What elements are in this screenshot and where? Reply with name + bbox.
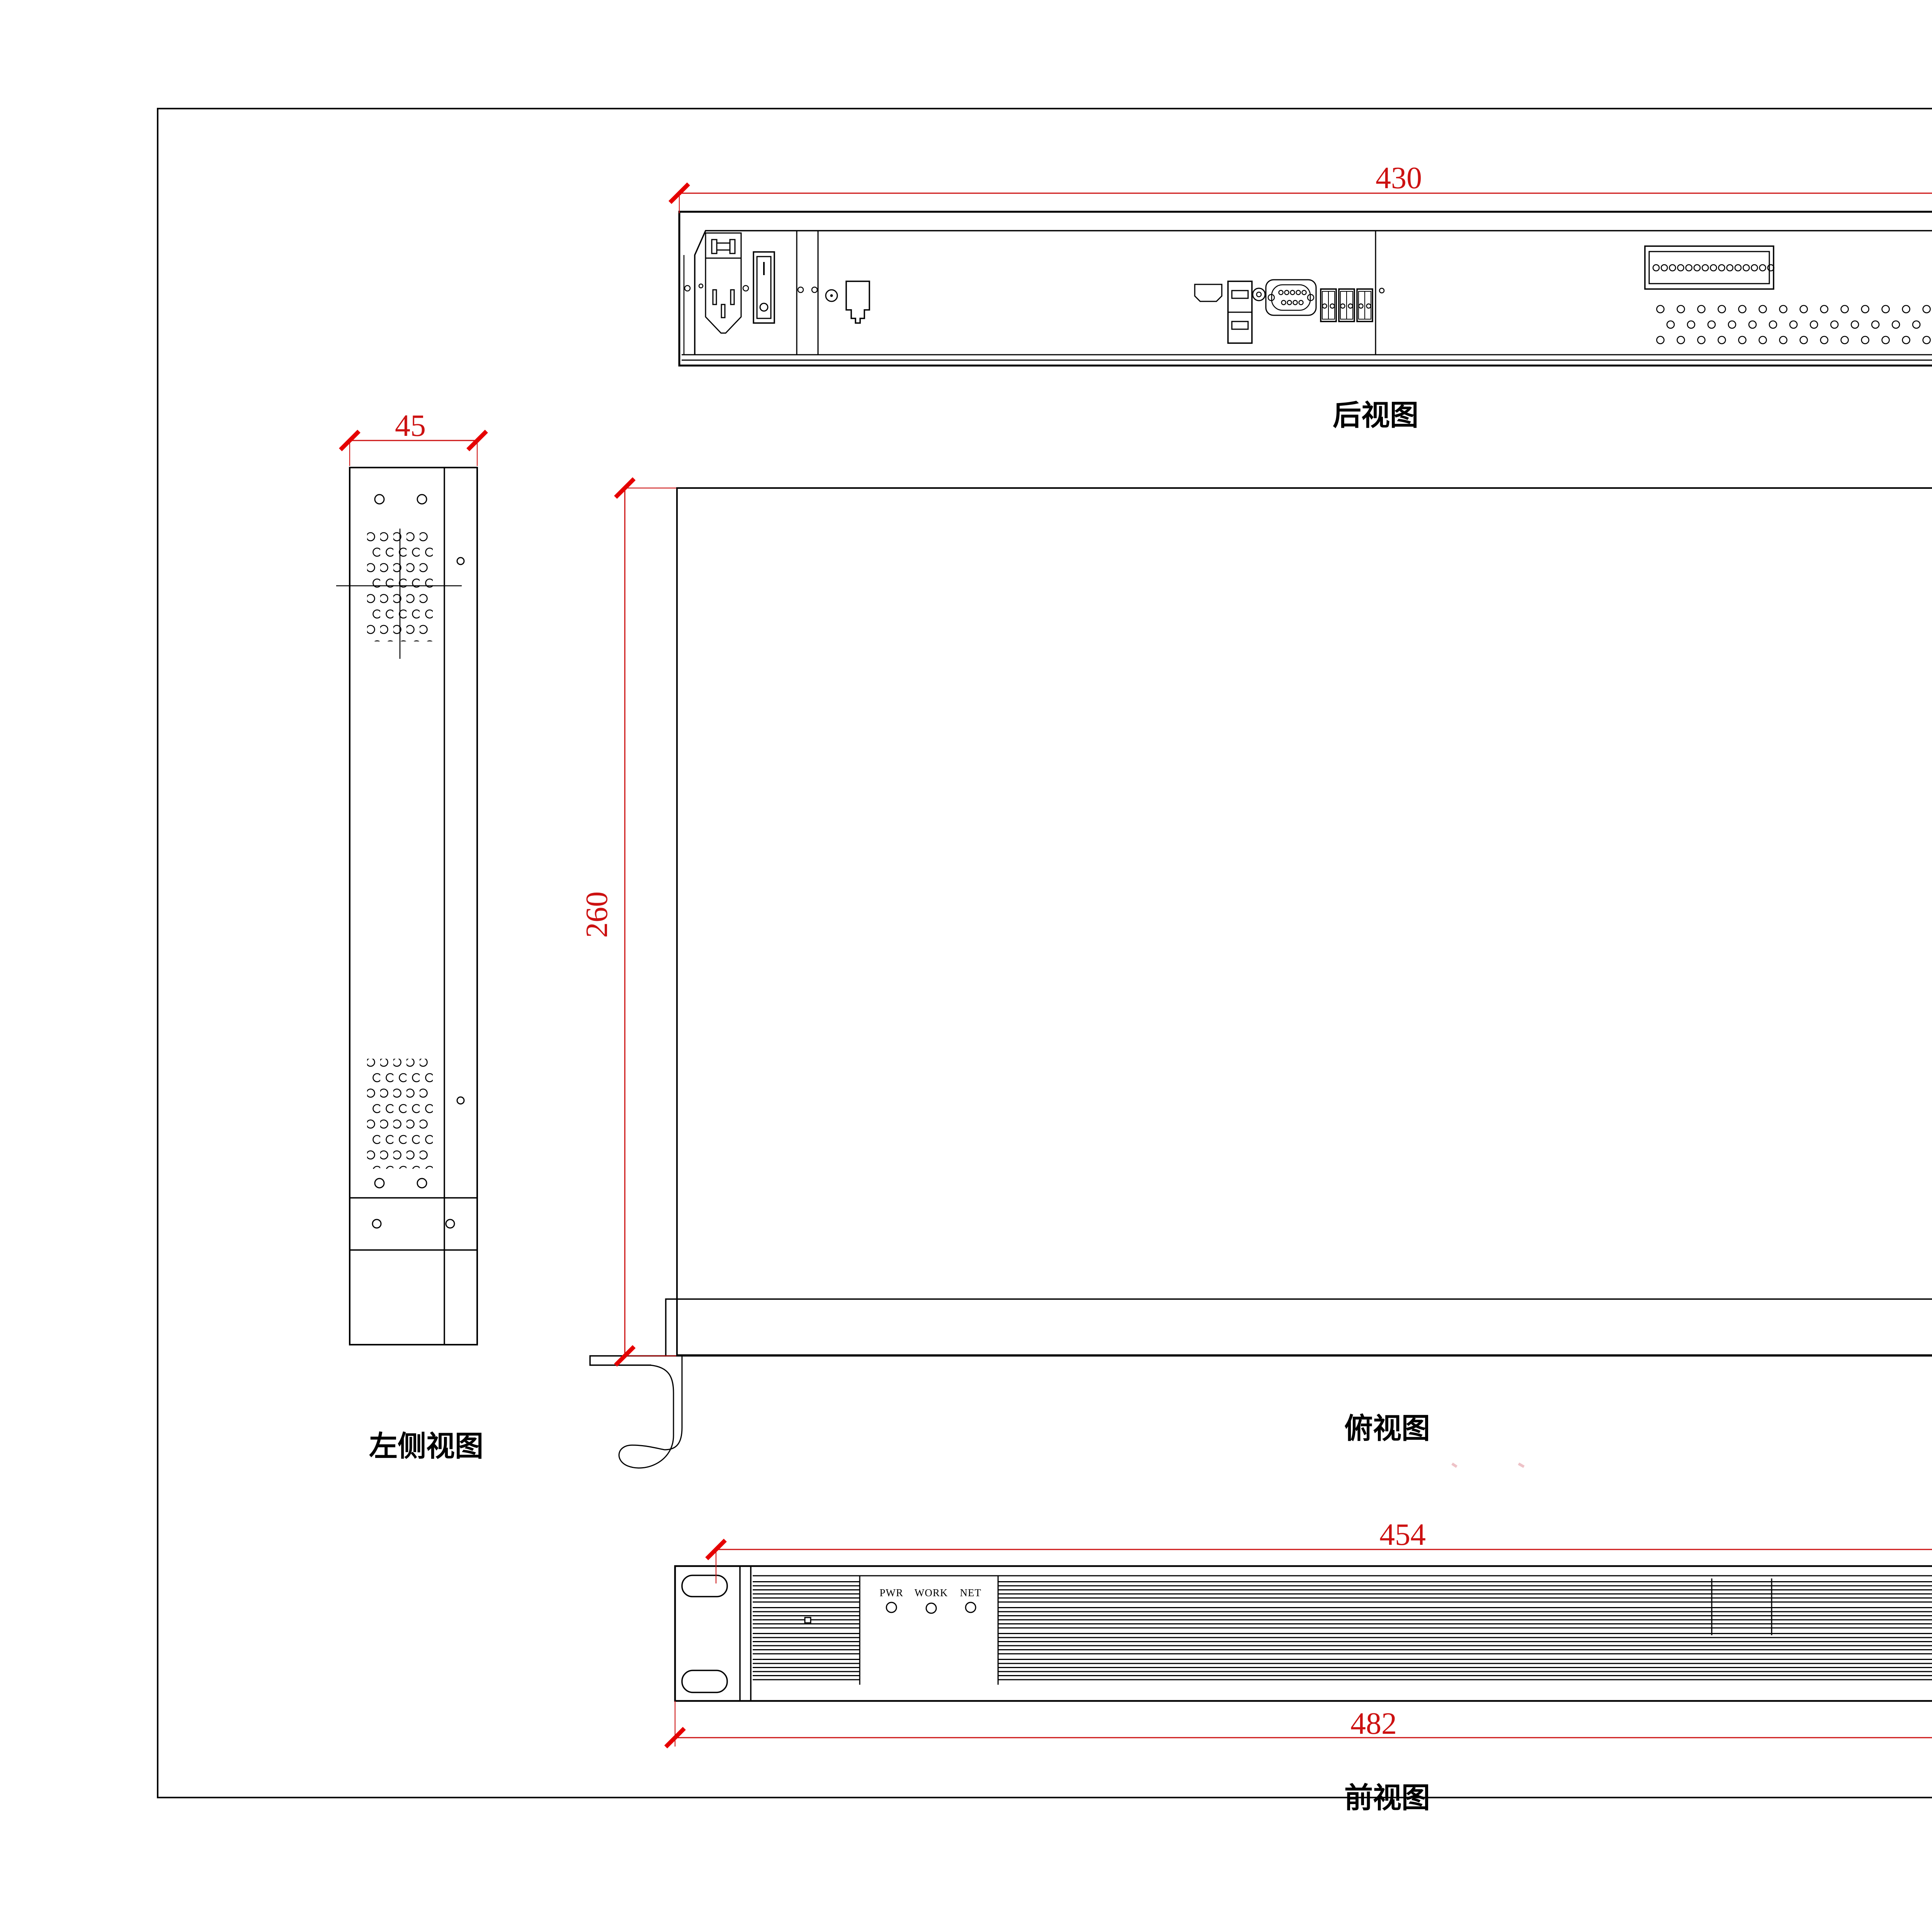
hole xyxy=(1341,304,1345,308)
mounting-hole xyxy=(417,495,427,504)
rack-slot xyxy=(682,1575,727,1597)
db9-serial-port xyxy=(1266,280,1316,315)
hole xyxy=(1299,301,1303,305)
led-label-work: WORK xyxy=(915,1587,948,1599)
led-indicator xyxy=(926,1603,936,1613)
hole xyxy=(1349,304,1353,308)
hole xyxy=(1282,301,1286,305)
dim-text-454: 454 xyxy=(1379,1518,1426,1552)
dim-text-45: 45 xyxy=(395,409,426,443)
drawing-page: 430 后视图 单位：mm 45 左侧视图 xyxy=(0,0,1932,1932)
engineering-drawing: 430 后视图 单位：mm 45 左侧视图 xyxy=(0,0,1932,1932)
louver-vent xyxy=(753,1581,860,1685)
left-side-view-label: 左侧视图 xyxy=(369,1430,483,1463)
louver-vent xyxy=(998,1581,1932,1685)
top-view-front-strip xyxy=(666,1299,1932,1356)
mounting-hole xyxy=(417,1179,427,1188)
audio-jack-center xyxy=(830,294,833,297)
screw-hole xyxy=(457,1097,464,1104)
mounting-hole xyxy=(375,1179,384,1188)
front-view: PWR WORK NET 454 482 前视图 xyxy=(666,1518,1932,1815)
ac-pin-slot xyxy=(731,290,734,304)
hole xyxy=(1661,265,1667,271)
hole xyxy=(1330,304,1335,308)
hole xyxy=(1287,301,1292,305)
iec-c14-socket xyxy=(706,258,741,333)
hole xyxy=(1686,265,1692,271)
hole xyxy=(1727,265,1733,271)
usb-tongue xyxy=(1232,321,1248,329)
dim-text-260: 260 xyxy=(580,891,614,938)
switch-off-mark xyxy=(760,303,768,311)
screw-hole xyxy=(685,286,690,291)
screw-hole xyxy=(798,287,803,293)
led-indicator xyxy=(966,1602,976,1612)
fuse-holder-icon xyxy=(730,240,735,253)
fuse-holder-icon xyxy=(712,240,717,253)
hole xyxy=(1678,265,1684,271)
hole xyxy=(1279,291,1283,295)
hole xyxy=(1296,291,1301,295)
usb-tongue xyxy=(1232,291,1248,298)
screw-hole xyxy=(812,287,817,293)
hole xyxy=(1743,265,1749,271)
hole xyxy=(1291,291,1295,295)
left-side-view: 45 左侧视图 xyxy=(336,409,486,1463)
mounting-hole xyxy=(446,1219,454,1228)
page-frame xyxy=(158,109,1932,1798)
ac-pin-slot xyxy=(713,290,716,304)
hole xyxy=(1760,265,1766,271)
rj45-port-icon xyxy=(846,281,869,323)
round-connector-icon xyxy=(1253,288,1265,301)
terminal-strip-holes xyxy=(1653,265,1774,271)
front-view-label: 前视图 xyxy=(1344,1781,1430,1815)
mounting-hole xyxy=(375,495,384,504)
led-panel: PWR WORK NET xyxy=(860,1576,998,1685)
hole xyxy=(1367,304,1371,308)
dim-text-430: 430 xyxy=(1376,161,1422,195)
dim-text-482: 482 xyxy=(1350,1707,1397,1741)
top-view-label: 俯视图 xyxy=(1344,1412,1430,1445)
terminal-strip xyxy=(1645,246,1774,289)
led-indicator xyxy=(886,1602,896,1612)
mounting-hole xyxy=(372,1219,381,1228)
db9-pins xyxy=(1279,291,1306,305)
led-label-pwr: PWR xyxy=(879,1587,903,1599)
ac-pin-slot xyxy=(721,304,725,318)
hole xyxy=(1359,304,1363,308)
screw-hole xyxy=(457,558,464,565)
artifact-mark xyxy=(1452,1464,1457,1467)
artifact-mark xyxy=(1519,1464,1524,1467)
hole xyxy=(1719,265,1725,271)
rear-view: 430 后视图 xyxy=(670,161,1932,432)
hole xyxy=(1710,265,1716,271)
left-hook xyxy=(619,1365,673,1468)
round-connector-center xyxy=(1257,292,1261,297)
usb-ports xyxy=(1228,281,1252,343)
hole xyxy=(1751,265,1757,271)
top-view: 260 俯视图 xyxy=(580,479,1932,1468)
hole xyxy=(1653,265,1659,271)
ir-window xyxy=(805,1617,811,1623)
rear-view-label: 后视图 xyxy=(1333,399,1418,432)
ac-power-inlet xyxy=(706,233,741,333)
rack-slot xyxy=(682,1670,727,1692)
hole xyxy=(1694,265,1700,271)
vent-holes xyxy=(1655,302,1932,345)
left-ear-tab xyxy=(590,1356,666,1365)
screw-hole xyxy=(699,284,703,288)
hole xyxy=(1293,301,1298,305)
hole xyxy=(1702,265,1708,271)
hole xyxy=(1285,291,1289,295)
hole xyxy=(1669,265,1675,271)
hole xyxy=(1323,304,1327,308)
screw-hole xyxy=(1379,288,1384,293)
hole xyxy=(1302,291,1306,295)
terminal-blocks xyxy=(1321,289,1372,321)
power-switch xyxy=(753,252,774,323)
terminal-block-2pin xyxy=(1357,289,1372,321)
led-label-net: NET xyxy=(960,1587,981,1599)
screw-hole xyxy=(743,286,748,291)
terminal-block-2pin xyxy=(1339,289,1354,321)
vent-cluster xyxy=(367,1059,433,1169)
hdmi-port-icon xyxy=(1195,284,1222,301)
terminal-block-2pin xyxy=(1321,289,1336,321)
hole xyxy=(1735,265,1741,271)
top-view-body xyxy=(677,488,1932,1355)
